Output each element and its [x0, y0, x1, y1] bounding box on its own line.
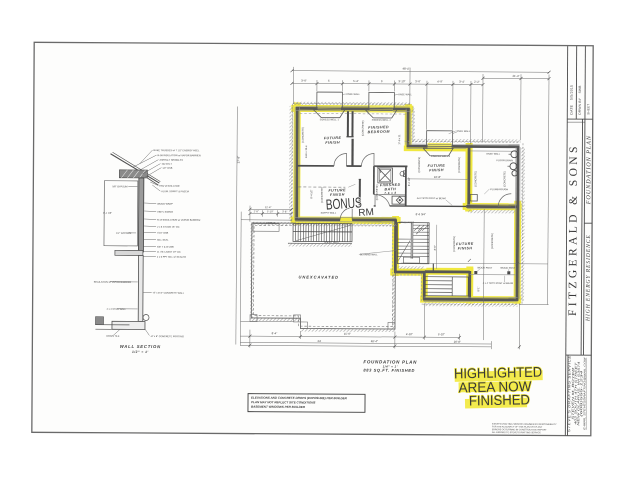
svg-text:DRWN BY SWB: DRWN BY SWB	[578, 85, 582, 114]
svg-text:(CONCRETE): (CONCRETE)	[458, 157, 461, 173]
svg-text:R-38 INSULATION w/ VAPOR BARRI: R-38 INSULATION w/ VAPOR BARRIER	[158, 154, 202, 157]
svg-text:37'-8": 37'-8"	[236, 156, 240, 164]
svg-text:RM: RM	[358, 207, 374, 219]
svg-text:2'-8": 2'-8"	[254, 209, 259, 213]
svg-text:BASEMENT WINDOWS PER BUILDER: BASEMENT WINDOWS PER BUILDER	[251, 405, 306, 409]
svg-text:8'-2 1/2": 8'-2 1/2"	[408, 177, 411, 186]
svg-text:(CONCRETE): (CONCRETE)	[503, 171, 506, 187]
svg-text:8'-9": 8'-9"	[433, 245, 437, 250]
svg-text:SHEET: SHEET	[586, 104, 590, 115]
svg-text:8'-4": 8'-4"	[272, 331, 278, 335]
svg-text:17-6 x 11: 17-6 x 11	[398, 134, 401, 145]
svg-text:FITZGERALD & SONS: FITZGERALD & SONS	[567, 143, 580, 316]
svg-text:PLUMB ROUGH: PLUMB ROUGH	[490, 188, 508, 191]
svg-text:5'-10": 5'-10"	[267, 209, 274, 213]
svg-text:3'-6": 3'-6"	[301, 79, 307, 83]
svg-text:HIGH ENERGY RESIDENCE: HIGH ENERGY RESIDENCE	[586, 234, 593, 322]
svg-text:48'-4": 48'-4"	[402, 67, 409, 71]
svg-text:8'-4 1/2": 8'-4 1/2"	[310, 189, 313, 198]
svg-text:(CONCRETE): (CONCRETE)	[418, 157, 421, 173]
svg-text:(CONCRETE): (CONCRETE)	[453, 236, 456, 252]
svg-text:EGRESS WELL 2: EGRESS WELL 2	[372, 119, 392, 122]
svg-text:7/16" OSB: 7/16" OSB	[157, 232, 169, 235]
svg-text:SOFFIT WALL: SOFFIT WALL	[324, 241, 340, 244]
svg-text:5'-10": 5'-10"	[438, 332, 445, 336]
svg-text:5/8" T & G OSB: 5/8" T & G OSB	[157, 246, 174, 249]
svg-text:(CONCRETE): (CONCRETE)	[362, 120, 365, 136]
svg-text:FINISH: FINISH	[325, 140, 340, 144]
svg-text:FINISH: FINISH	[330, 193, 345, 197]
svg-text:RAKE TRUSSES w/ 7 1/2" ENERGY: RAKE TRUSSES w/ 7 1/2" ENERGY HEEL	[154, 149, 201, 152]
svg-text:2 x 4 STUD WALL: 2 x 4 STUD WALL	[107, 308, 127, 311]
svg-text:4'-10": 4'-10"	[406, 332, 413, 336]
svg-text:2 x 6 STUDS 16" OC: 2 x 6 STUDS 16" OC	[157, 226, 180, 229]
svg-text:FLOOR DRAIN: FLOOR DRAIN	[496, 159, 513, 162]
svg-text:SILL SEAL: SILL SEAL	[157, 239, 169, 242]
svg-text:(CONCRETE): (CONCRETE)	[491, 233, 494, 249]
svg-text:8'-1": 8'-1"	[477, 286, 480, 291]
svg-text:11 7/8 I-JOIST 19" OC: 11 7/8 I-JOIST 19" OC	[157, 251, 181, 254]
svg-text:KNEE WALL: KNEE WALL	[457, 130, 471, 133]
svg-text:FINISH: FINISH	[458, 246, 473, 250]
svg-text:WALL SECTION: WALL SECTION	[120, 344, 161, 349]
svg-text:4x4 TRT'D POST w/ BEAM: 4x4 TRT'D POST w/ BEAM	[417, 197, 446, 200]
svg-text:DRAIN TILE: DRAIN TILE	[106, 335, 120, 338]
svg-text:FOR THE ACCURACY OF THIS PLAN: FOR THE ACCURACY OF THIS PLAN OR OF ANY	[492, 425, 543, 428]
svg-text:R-19 INSULATION w/ VAPOR BARRI: R-19 INSULATION w/ VAPOR BARRIER	[157, 219, 201, 222]
svg-text:WOOD POST: WOOD POST	[399, 221, 414, 224]
svg-text:KNEE WALL: KNEE WALL	[346, 93, 360, 96]
svg-text:4'-9": 4'-9"	[437, 79, 443, 83]
svg-text:8'-1 1/8": 8'-1 1/8"	[103, 212, 112, 215]
svg-text:5/8" GYPSUM: 5/8" GYPSUM	[112, 185, 127, 188]
svg-text:1/2" OSB: 1/2" OSB	[162, 167, 172, 170]
svg-text:1/2" GYPSUM: 1/2" GYPSUM	[116, 232, 131, 235]
svg-text:7-6 x 8: 7-6 x 8	[384, 191, 396, 195]
svg-text:3'-6": 3'-6"	[415, 79, 421, 83]
svg-text:EGRESS WELL 3: EGRESS WELL 3	[431, 155, 451, 158]
svg-text:ALL ERRORS TO STEVE'S DRAFTING: ALL ERRORS TO STEVE'S DRAFTING SERVICE	[492, 431, 542, 434]
svg-text:4 x 4 TRT'D POST w/ BEAM: 4 x 4 TRT'D POST w/ BEAM	[483, 282, 513, 285]
svg-text:WOOD WRAP: WOOD WRAP	[157, 203, 173, 206]
svg-text:(CONCRETE): (CONCRETE)	[474, 171, 477, 187]
svg-text:1/2" = 1': 1/2" = 1'	[132, 350, 149, 354]
svg-text:-8" x 8" CONCRETE FOOTING: -8" x 8" CONCRETE FOOTING	[150, 335, 183, 338]
svg-text:WOOD POST: WOOD POST	[500, 267, 515, 270]
svg-text:KNEE WALL: KNEE WALL	[487, 153, 501, 156]
svg-text:VINYL SIDING: VINYL SIDING	[157, 211, 173, 214]
svg-text:INSULATION w/ VAPOR BARRIER: INSULATION w/ VAPOR BARRIER	[94, 281, 132, 284]
svg-text:15# FELT: 15# FELT	[161, 163, 172, 166]
svg-text:11'-4": 11'-4"	[265, 205, 272, 209]
svg-text:3'-4": 3'-4"	[459, 80, 465, 84]
svg-text:(CONCRETE): (CONCRETE)	[376, 184, 379, 200]
svg-text:WOOD POST: WOOD POST	[477, 267, 492, 270]
svg-text:2 x 6 PPT SILL w/ SEALER: 2 x 6 PPT SILL w/ SEALER	[157, 256, 186, 259]
svg-text:8'-6 3/4": 8'-6 3/4"	[416, 212, 426, 216]
svg-text:1 TREAD: 1 TREAD	[266, 222, 276, 225]
svg-text:KNEE WALL: KNEE WALL	[398, 93, 412, 96]
svg-text:21'-4": 21'-4"	[512, 74, 519, 78]
svg-text:FINISH: FINISH	[429, 168, 444, 172]
svg-text:FOUNDATION PLAN: FOUNDATION PLAN	[585, 135, 592, 205]
svg-text:14-6 x 19-4: 14-6 x 19-4	[305, 145, 308, 158]
svg-text:(CONCRETE): (CONCRETE)	[321, 187, 324, 203]
svg-text:883 SQ.FT. FINISHED: 883 SQ.FT. FINISHED	[363, 368, 415, 373]
svg-text:ALUM. SOFFIT & FASCIA: ALUM. SOFFIT & FASCIA	[161, 190, 189, 193]
svg-text:3'-10": 3'-10"	[398, 79, 405, 83]
svg-text:-8" x 8'-0" CONCRETE WALL: -8" x 8'-0" CONCRETE WALL	[153, 292, 185, 295]
svg-text:ASPHALT SHINGLES: ASPHALT SHINGLES	[159, 159, 183, 162]
svg-text:UNEXCAVATED: UNEXCAVATED	[298, 274, 339, 279]
svg-text:EGRESS WELL 1: EGRESS WELL 1	[320, 118, 340, 121]
svg-text:3'-8": 3'-8"	[282, 209, 287, 213]
svg-text:2'-2": 2'-2"	[474, 80, 480, 84]
svg-text:15'-6": 15'-6"	[344, 332, 351, 336]
svg-text:E-MAIL STEVESDRAFTING@MAIL.COM: E-MAIL STEVESDRAFTING@MAIL.COM	[582, 357, 586, 430]
svg-text:SOFFIT WALL: SOFFIT WALL	[321, 212, 337, 215]
svg-text:DATE 5/5/2015: DATE 5/5/2015	[570, 85, 574, 115]
svg-text:FAN VENTILATOR: FAN VENTILATOR	[159, 185, 179, 188]
svg-text:FINISHED: FINISHED	[469, 391, 530, 408]
svg-text:5'-4": 5'-4"	[353, 79, 359, 83]
svg-text:20'-8": 20'-8"	[454, 340, 461, 344]
svg-text:48'-4": 48'-4"	[371, 339, 378, 343]
svg-text:16'-8": 16'-8"	[434, 175, 441, 179]
svg-text:24': 24'	[318, 339, 322, 343]
svg-text:(CONCRETE): (CONCRETE)	[302, 127, 305, 143]
svg-text:BEDROOM: BEDROOM	[368, 130, 391, 135]
